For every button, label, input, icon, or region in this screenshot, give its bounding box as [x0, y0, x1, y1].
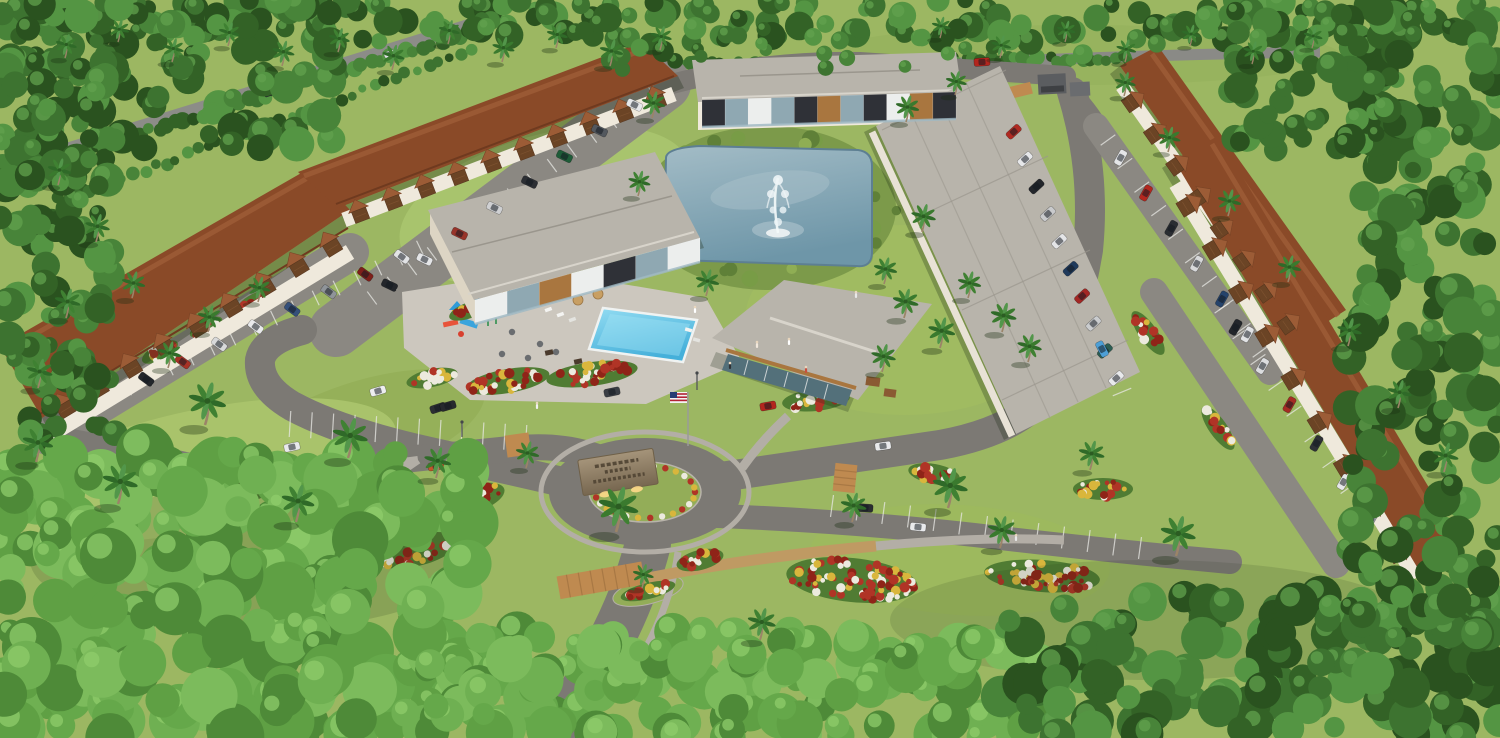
aerial-rendering: Aerial rendering of a tropical condomini…	[0, 0, 1500, 738]
person	[756, 341, 759, 348]
crosswalk-east	[833, 463, 858, 493]
person	[694, 306, 697, 313]
person	[536, 402, 539, 409]
car	[910, 522, 927, 532]
aerial-rendering-stage: Aerial rendering of a tropical condomini…	[0, 0, 1500, 738]
person	[855, 291, 858, 298]
person	[788, 338, 791, 345]
american-flag	[670, 392, 687, 403]
person	[805, 366, 808, 373]
person	[1015, 534, 1018, 541]
person	[729, 362, 732, 369]
